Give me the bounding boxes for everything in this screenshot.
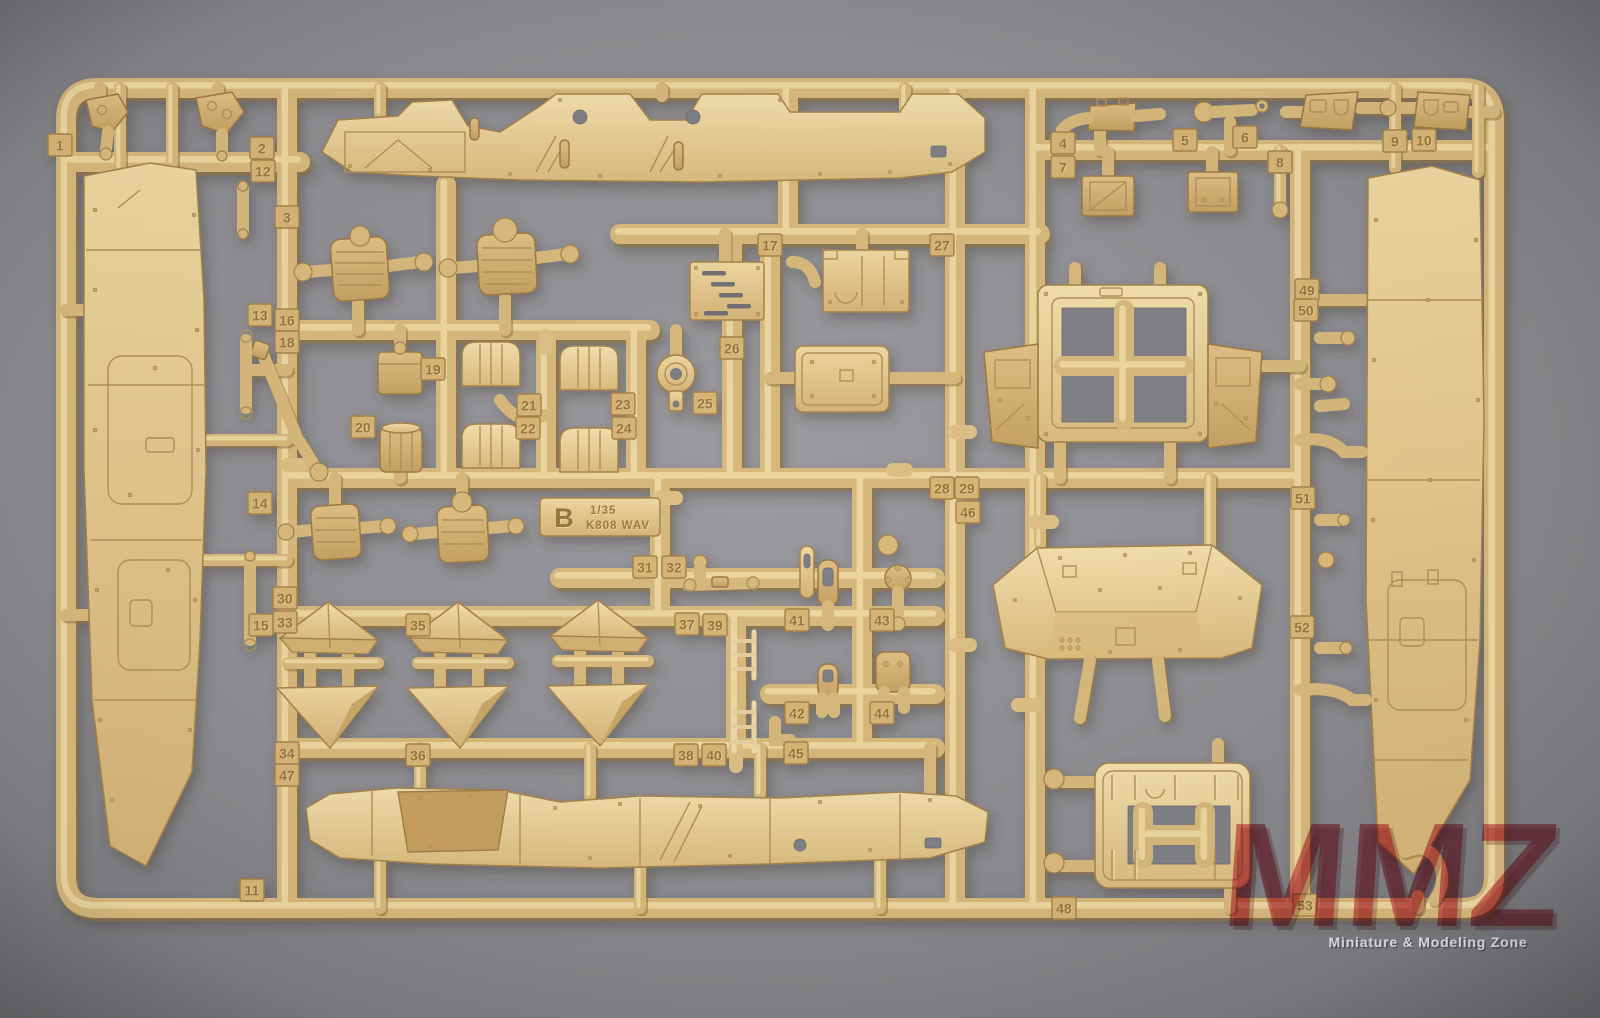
svg-text:26: 26 bbox=[724, 340, 740, 356]
part-number-tab: 66 bbox=[1233, 126, 1257, 148]
part-number-tab: 1414 bbox=[248, 492, 272, 514]
sprue-id-plate: B 1/35 K808 WAV bbox=[540, 498, 660, 536]
part-number-tab: 4949 bbox=[1295, 279, 1319, 301]
part-number-tab: 2121 bbox=[517, 394, 541, 416]
part-number-tab: 4141 bbox=[785, 609, 809, 631]
svg-text:3: 3 bbox=[283, 209, 291, 225]
part-number-tab: 33 bbox=[275, 206, 299, 228]
svg-text:22: 22 bbox=[520, 420, 536, 436]
part-number-tab: 3737 bbox=[675, 613, 699, 635]
part-number-tab: 3838 bbox=[674, 744, 698, 766]
part-number-tab: 3434 bbox=[275, 742, 299, 764]
part-number-tab: 4444 bbox=[870, 702, 894, 724]
part-number-tab: 3535 bbox=[406, 614, 430, 636]
part-left-hull-panel bbox=[84, 163, 206, 866]
svg-text:8: 8 bbox=[1276, 154, 1284, 170]
part-number-tab: 2929 bbox=[955, 477, 979, 499]
svg-text:30: 30 bbox=[277, 590, 293, 606]
part-number-tab: 1717 bbox=[758, 234, 782, 256]
svg-text:17: 17 bbox=[762, 237, 778, 253]
svg-text:14: 14 bbox=[252, 495, 268, 511]
svg-text:23: 23 bbox=[615, 396, 631, 412]
part-number-tab: 4343 bbox=[870, 609, 894, 631]
svg-text:52: 52 bbox=[1294, 619, 1310, 635]
svg-text:48: 48 bbox=[1056, 900, 1072, 916]
part-number-tab: 1515 bbox=[249, 614, 273, 636]
part-number-tab: 4545 bbox=[784, 742, 808, 764]
svg-text:45: 45 bbox=[788, 745, 804, 761]
part-number-tab: 5151 bbox=[1291, 487, 1315, 509]
part-number-tab: 2323 bbox=[611, 393, 635, 415]
svg-text:1: 1 bbox=[56, 137, 64, 153]
sprue-photo: B 1/35 K808 WAV 112233445566778899101011… bbox=[0, 0, 1600, 1018]
svg-text:15: 15 bbox=[253, 617, 269, 633]
svg-text:2: 2 bbox=[258, 140, 266, 156]
svg-text:12: 12 bbox=[255, 163, 271, 179]
svg-text:47: 47 bbox=[279, 767, 295, 783]
watermark-tagline: Miniature & Modeling Zone Miniature & Mo… bbox=[1329, 934, 1529, 952]
part-number-tab: 4848 bbox=[1052, 897, 1076, 919]
svg-text:46: 46 bbox=[960, 504, 976, 520]
part-number-tab: 3030 bbox=[273, 587, 297, 609]
part-number-tab: 4646 bbox=[956, 501, 980, 523]
svg-text:21: 21 bbox=[521, 397, 537, 413]
svg-text:10: 10 bbox=[1416, 132, 1432, 148]
sprue-letter: B bbox=[554, 503, 574, 533]
svg-text:50: 50 bbox=[1298, 302, 1314, 318]
part-number-tab: 4040 bbox=[702, 744, 726, 766]
svg-text:11: 11 bbox=[245, 882, 260, 898]
part-number-tab: 3333 bbox=[273, 611, 297, 633]
svg-text:41: 41 bbox=[789, 612, 805, 628]
dark-armor-patch bbox=[398, 790, 508, 852]
part-number-tab: 1919 bbox=[421, 358, 445, 380]
svg-text:29: 29 bbox=[959, 480, 975, 496]
svg-text:32: 32 bbox=[666, 559, 682, 575]
watermark-tagline-text: Miniature & Modeling Zone bbox=[1329, 934, 1528, 950]
part-number-tab: 2222 bbox=[516, 417, 540, 439]
part-number-tab: 5252 bbox=[1290, 616, 1314, 638]
svg-text:6: 6 bbox=[1241, 129, 1249, 145]
svg-text:28: 28 bbox=[934, 480, 950, 496]
svg-text:7: 7 bbox=[1059, 159, 1067, 175]
svg-text:39: 39 bbox=[707, 617, 723, 633]
part-number-tab: 55 bbox=[1173, 129, 1197, 151]
sprue-kit-name: K808 WAV bbox=[586, 520, 650, 532]
part-vent-plate bbox=[690, 262, 764, 320]
svg-text:35: 35 bbox=[410, 617, 426, 633]
part-number-tab: 1818 bbox=[275, 331, 299, 353]
svg-text:16: 16 bbox=[279, 312, 295, 328]
svg-text:18: 18 bbox=[279, 334, 295, 350]
svg-text:37: 37 bbox=[679, 616, 695, 632]
part-number-tab: 77 bbox=[1051, 156, 1075, 178]
part-number-tab: 11 bbox=[48, 134, 72, 156]
svg-text:5: 5 bbox=[1181, 132, 1189, 148]
part-number-tab: 4242 bbox=[785, 702, 809, 724]
part-number-tab: 99 bbox=[1383, 130, 1407, 152]
part-number-tab: 22 bbox=[250, 137, 274, 159]
part-small-door bbox=[795, 346, 889, 412]
svg-text:19: 19 bbox=[425, 361, 441, 377]
part-number-tab: 1616 bbox=[275, 309, 299, 331]
svg-text:13: 13 bbox=[252, 307, 268, 323]
part-number-tab: 2020 bbox=[351, 416, 375, 438]
part-number-tab: 2424 bbox=[612, 417, 636, 439]
part-number-tab: 1111 bbox=[240, 879, 264, 901]
part-number-tab: 3636 bbox=[406, 744, 430, 766]
part-ribbed-drum-20 bbox=[380, 423, 422, 472]
photo-of-model-kit-sprue: B 1/35 K808 WAV 112233445566778899101011… bbox=[0, 0, 1600, 1018]
part-right-hull-panel bbox=[1366, 166, 1484, 874]
part-number-tab: 2525 bbox=[693, 392, 717, 414]
part-number-tab: 44 bbox=[1051, 132, 1075, 154]
part-number-tab: 88 bbox=[1268, 151, 1292, 173]
part-number-tab: 1212 bbox=[251, 160, 275, 182]
sprue-scale: 1/35 bbox=[590, 505, 616, 517]
svg-text:9: 9 bbox=[1391, 133, 1399, 149]
part-number-tab: 5050 bbox=[1294, 299, 1318, 321]
part-number-tab: 1313 bbox=[248, 304, 272, 326]
svg-text:43: 43 bbox=[874, 612, 890, 628]
svg-text:38: 38 bbox=[678, 747, 694, 763]
part-number-tab: 3131 bbox=[633, 556, 657, 578]
svg-text:25: 25 bbox=[697, 395, 713, 411]
svg-text:42: 42 bbox=[789, 705, 805, 721]
svg-text:27: 27 bbox=[934, 237, 950, 253]
svg-text:44: 44 bbox=[874, 705, 890, 721]
svg-text:24: 24 bbox=[616, 420, 632, 436]
svg-text:36: 36 bbox=[410, 747, 426, 763]
part-number-tab: 2828 bbox=[930, 477, 954, 499]
part-number-tab: 3939 bbox=[703, 614, 727, 636]
svg-text:20: 20 bbox=[355, 419, 371, 435]
svg-text:33: 33 bbox=[277, 614, 293, 630]
part-number-tab: 2626 bbox=[720, 337, 744, 359]
part-number-tab: 4747 bbox=[275, 764, 299, 786]
svg-text:51: 51 bbox=[1295, 490, 1311, 506]
svg-text:49: 49 bbox=[1299, 282, 1315, 298]
part-number-tab: 1010 bbox=[1412, 129, 1436, 151]
part-number-tab: 3232 bbox=[662, 556, 686, 578]
part-lower-hull-side bbox=[306, 788, 988, 868]
part-number-tab: 2727 bbox=[930, 234, 954, 256]
svg-text:4: 4 bbox=[1059, 135, 1067, 151]
svg-text:40: 40 bbox=[706, 747, 722, 763]
svg-text:34: 34 bbox=[279, 745, 295, 761]
svg-text:31: 31 bbox=[637, 559, 653, 575]
